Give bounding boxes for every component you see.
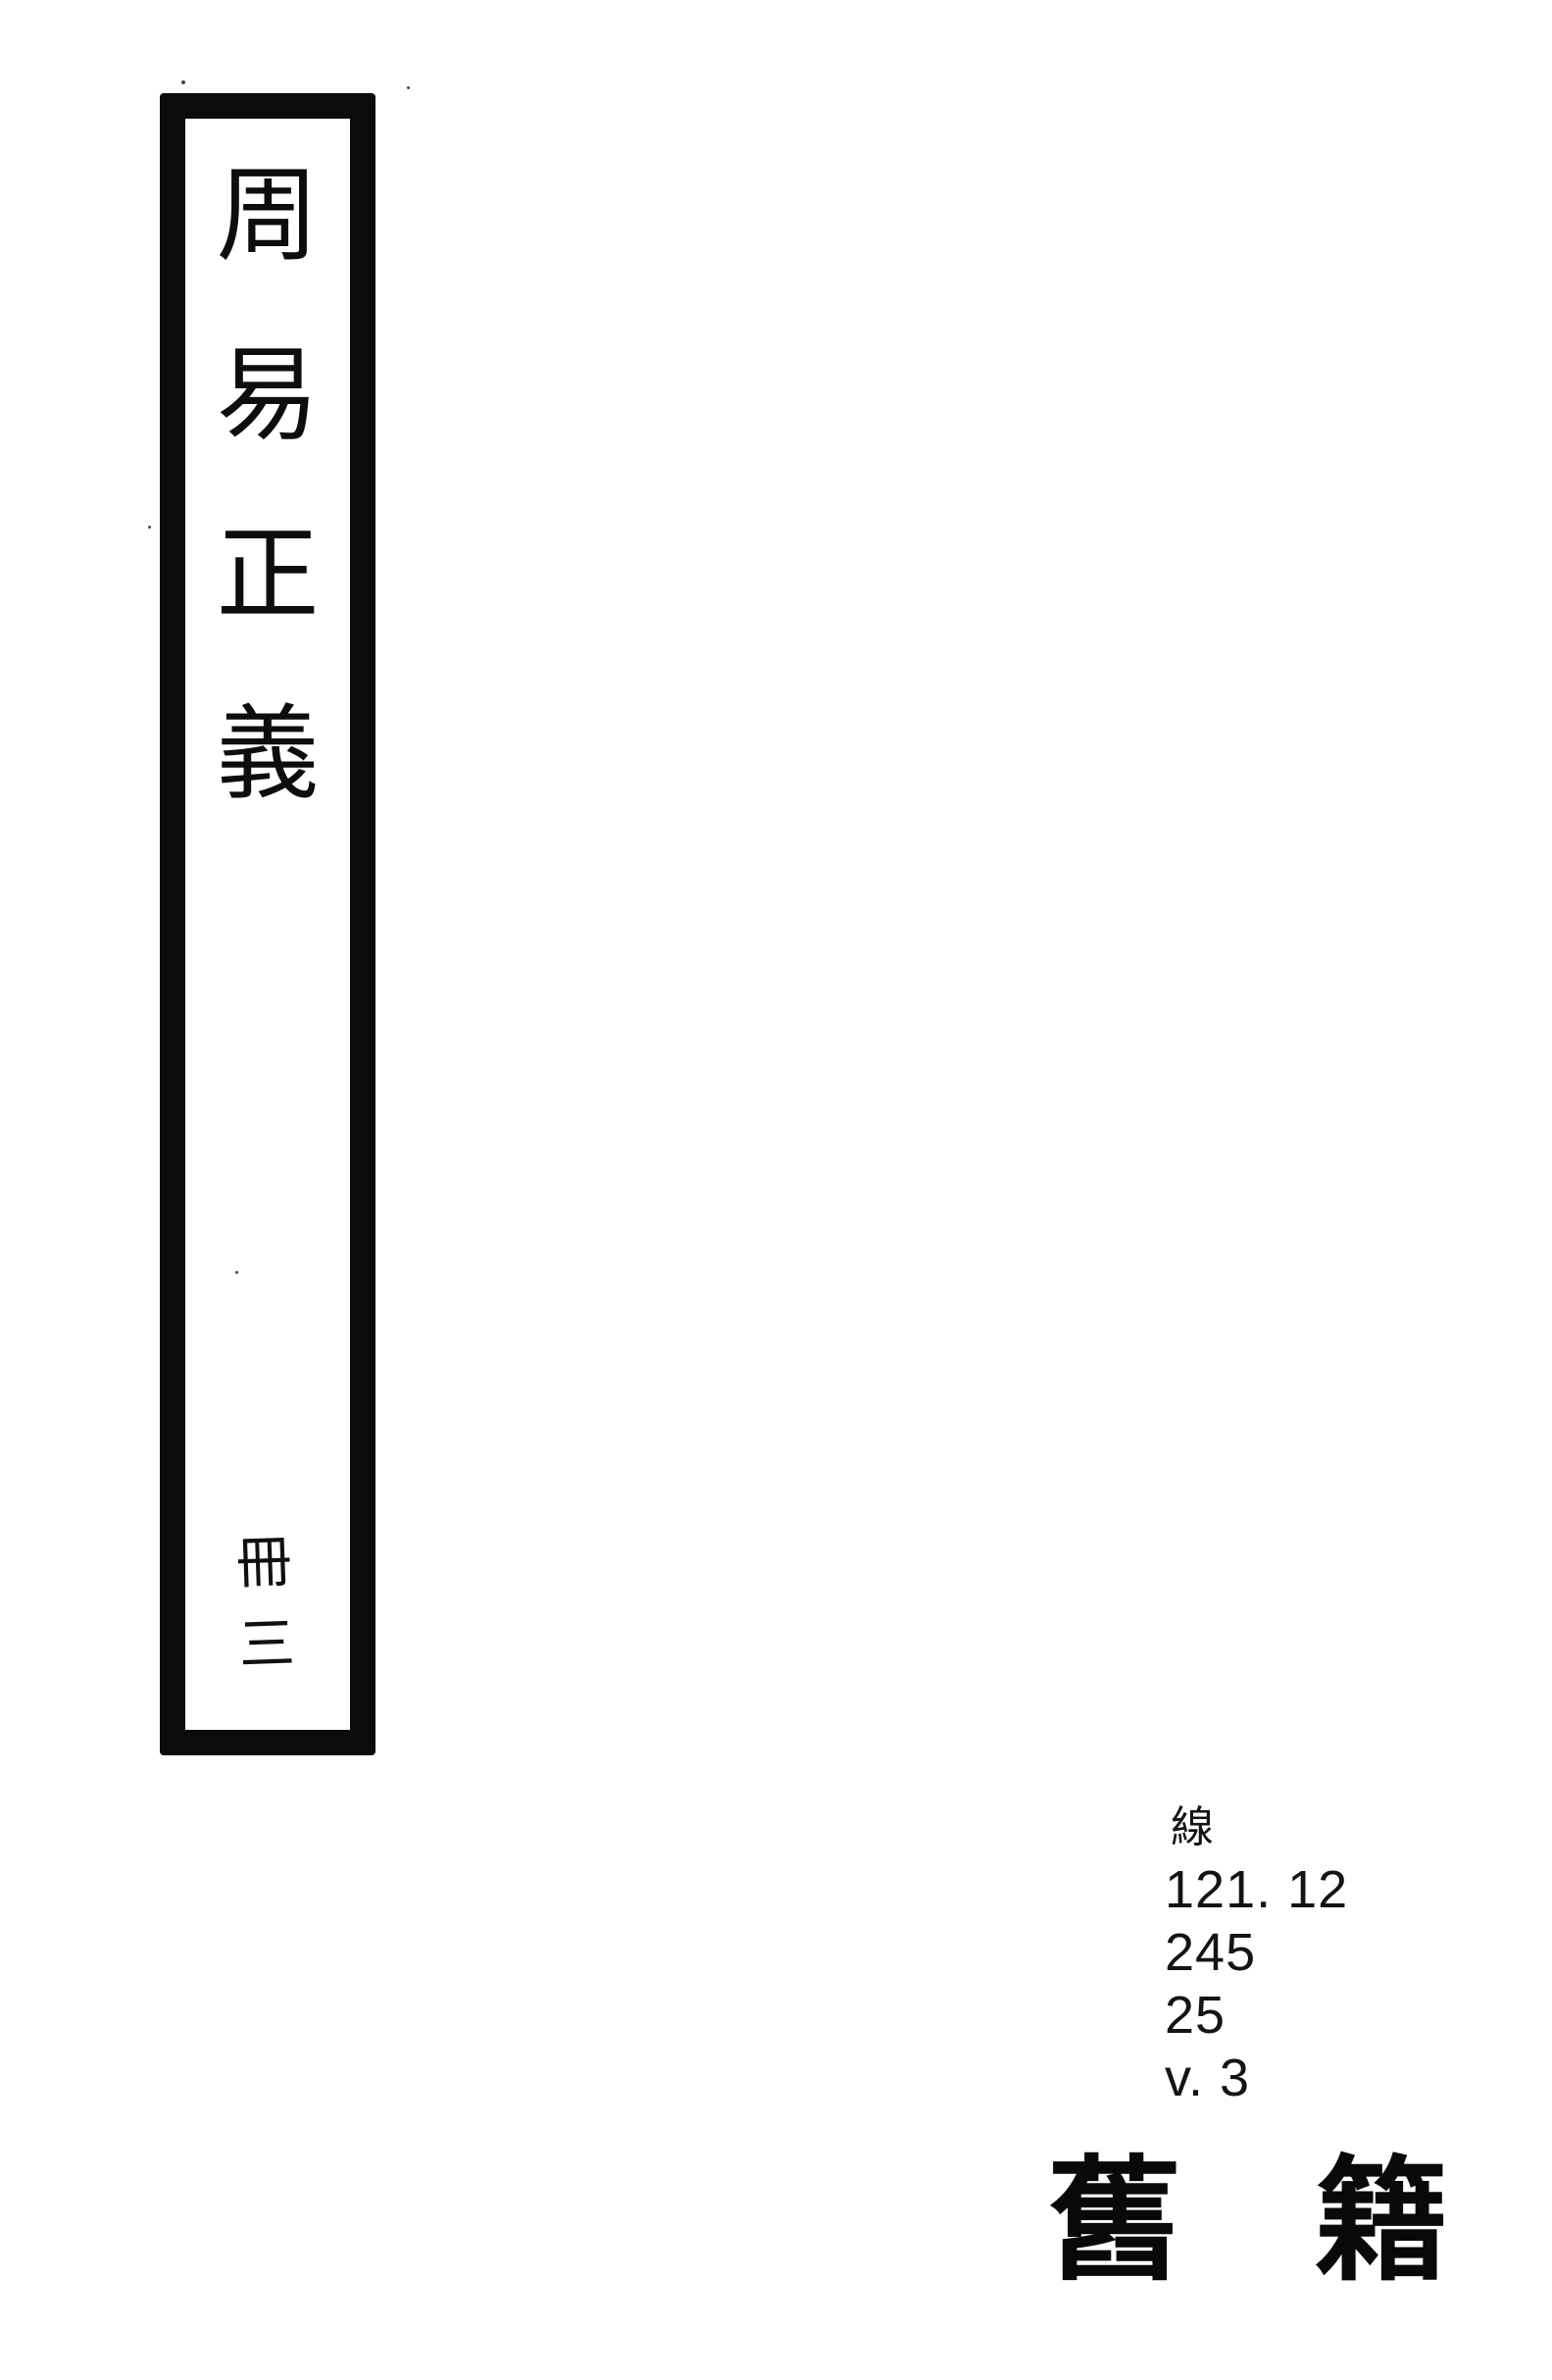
call-number-line: 25 xyxy=(1165,1984,1348,2047)
call-number-line: 245 xyxy=(1165,1921,1348,1984)
call-number-block: 線 121. 12 245 25 v. 3 xyxy=(1165,1798,1348,2109)
title-character: 義 xyxy=(216,703,319,806)
category-mark: 舊 籍 xyxy=(1047,2155,1449,2290)
call-number-line: 121. 12 xyxy=(1165,1858,1348,1921)
title-character: 周 xyxy=(216,165,319,268)
scanned-book-spine-page: 周 易 正 義 冊 三 線 121. 12 245 25 v. 3 舊 籍 xyxy=(0,0,1552,2380)
volume-label-vertical: 冊 三 xyxy=(235,1535,296,1674)
spine-label-box: 周 易 正 義 冊 三 xyxy=(160,93,375,1755)
call-number-line: v. 3 xyxy=(1165,2047,1348,2109)
title-character: 易 xyxy=(216,344,319,447)
volume-character: 三 xyxy=(238,1616,296,1674)
scan-speck xyxy=(148,526,151,529)
scan-speck xyxy=(181,80,185,84)
book-title-vertical: 周 易 正 義 xyxy=(185,165,350,806)
call-number-script-char: 線 xyxy=(1165,1798,1348,1858)
volume-character: 冊 xyxy=(235,1535,293,1593)
title-character: 正 xyxy=(216,524,319,627)
scan-speck xyxy=(407,86,410,89)
scan-speck xyxy=(235,1271,238,1274)
category-mark-character: 籍 xyxy=(1315,2155,1449,2290)
category-mark-character: 舊 xyxy=(1047,2155,1181,2290)
